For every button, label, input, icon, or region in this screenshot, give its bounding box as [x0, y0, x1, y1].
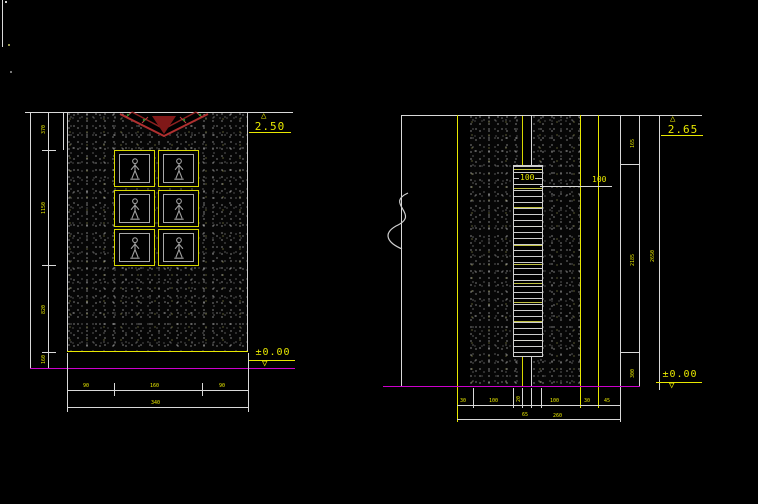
post-offset-label: 100: [592, 176, 606, 184]
level-underline: [249, 360, 295, 361]
post-width-label: 100: [519, 174, 535, 182]
panel-mat: [119, 233, 150, 262]
dim-label-total: 2650: [651, 250, 656, 262]
person-figure-icon: [124, 235, 146, 261]
level-underline: [656, 382, 702, 383]
level-triangle-icon: ▽: [669, 382, 674, 391]
level-value-ground: ±0.00: [657, 370, 703, 380]
layer-line: [457, 115, 458, 422]
panel-mat: [119, 194, 150, 223]
ground-line: [383, 386, 640, 387]
person-figure-icon: [168, 156, 190, 182]
leader-line: [540, 186, 612, 187]
dim-label-total: 65: [522, 413, 528, 418]
display-panel: [158, 229, 199, 266]
planting-icon: [108, 107, 220, 141]
dim-chain-line: [67, 390, 249, 391]
display-panel: [114, 150, 155, 187]
person-figure-icon: [168, 196, 190, 222]
cad-canvas: 370 1150 820 160: [0, 0, 758, 504]
layer-line: [580, 115, 581, 408]
dim-label: 30: [460, 399, 466, 404]
dim-label: 100: [489, 399, 498, 404]
dim-line: [659, 115, 660, 390]
display-panel: [114, 229, 155, 266]
dim-label: 2185: [631, 254, 636, 266]
dim-label: 90: [83, 384, 89, 389]
dim-label: 20: [517, 396, 522, 402]
dim-label-total: 260: [553, 414, 562, 419]
level-value-top: 2.65: [662, 124, 704, 135]
artifact-dot: [10, 71, 12, 73]
panel-mat: [163, 154, 194, 183]
dim-line: [639, 115, 640, 387]
dim-tick: [620, 164, 639, 165]
dim-label: 160: [150, 384, 159, 389]
artifact-line: [2, 0, 3, 47]
ground-line: [30, 368, 295, 369]
extension-line: [63, 112, 64, 150]
dim-label: 160: [42, 355, 47, 364]
dim-tick: [42, 352, 56, 353]
panel-mat: [163, 194, 194, 223]
panel-mat: [163, 233, 194, 262]
dim-label: 1150: [42, 202, 47, 214]
display-panel: [158, 150, 199, 187]
dim-label: 300: [631, 369, 636, 378]
post-stem-bottom: [522, 357, 532, 386]
dim-label: 90: [219, 384, 225, 389]
display-panel: [158, 190, 199, 227]
post-ladder-section: [513, 165, 543, 357]
dim-label: 820: [42, 305, 47, 314]
dim-total-line: [457, 419, 620, 420]
wall-base-line: [67, 351, 248, 352]
dim-tick: [620, 352, 639, 353]
extension-line: [248, 353, 249, 412]
display-panel: [114, 190, 155, 227]
layer-line: [598, 115, 599, 408]
level-underline: [249, 132, 291, 133]
dim-line: [620, 115, 621, 422]
break-symbol-icon: [378, 192, 418, 250]
post-stem-top: [522, 116, 532, 165]
level-value-ground: ±0.00: [250, 348, 296, 358]
dim-tick: [42, 150, 56, 151]
artifact-dot: [8, 44, 10, 46]
dim-label-total: 340: [151, 401, 160, 406]
dim-chain-line: [457, 405, 620, 406]
panel-mat: [119, 154, 150, 183]
level-value-top: 2.50: [249, 121, 291, 132]
extension-line: [67, 353, 68, 412]
dim-total-line: [67, 407, 249, 408]
wall-face-line: [401, 115, 402, 387]
dim-label: 100: [550, 399, 559, 404]
person-figure-icon: [124, 196, 146, 222]
dim-line-outer: [30, 112, 31, 368]
dim-label: 165: [631, 139, 636, 148]
artifact-dot: [5, 1, 7, 3]
level-underline: [661, 135, 703, 136]
person-figure-icon: [168, 235, 190, 261]
dim-tick: [42, 265, 56, 266]
dim-label: 370: [42, 125, 47, 134]
dim-label: 45: [604, 399, 610, 404]
dim-label: 30: [584, 399, 590, 404]
person-figure-icon: [124, 156, 146, 182]
